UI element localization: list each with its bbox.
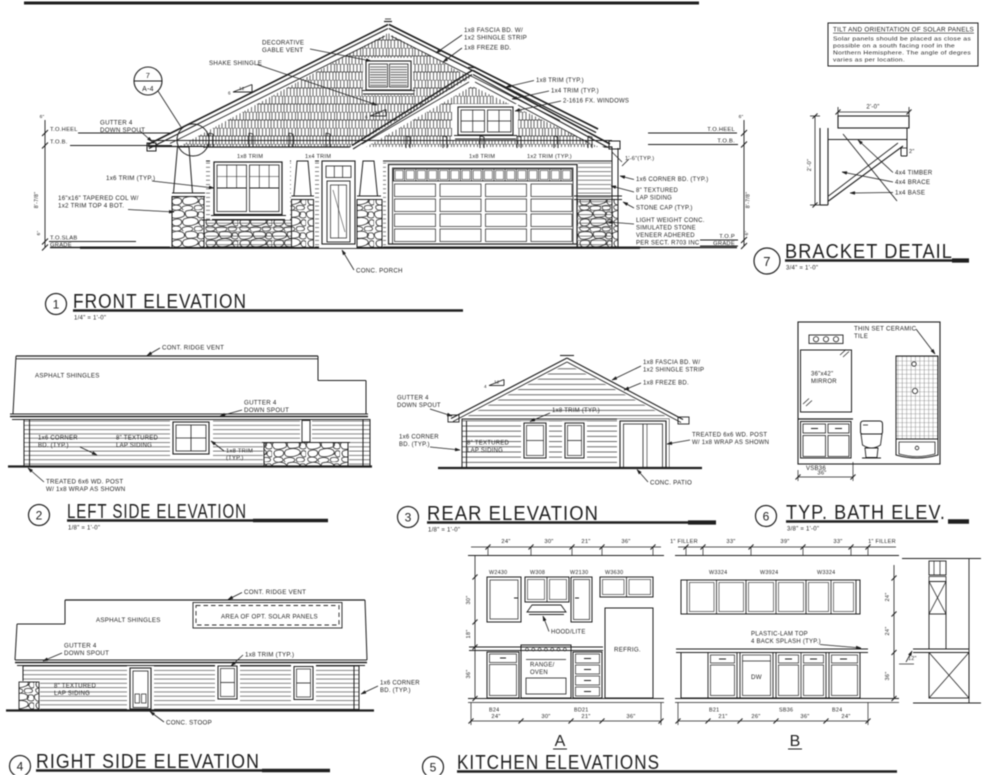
svg-text:1/4" = 1'-0": 1/4" = 1'-0" — [74, 316, 106, 322]
svg-text:8'-7/8": 8'-7/8" — [746, 192, 752, 208]
svg-text:LAP SIDING: LAP SIDING — [54, 691, 90, 697]
svg-text:4: 4 — [17, 760, 24, 774]
svg-text:RANGE/: RANGE/ — [530, 663, 555, 669]
svg-text:PER SECT. R703 INC: PER SECT. R703 INC — [636, 241, 700, 247]
svg-text:8'-7/8": 8'-7/8" — [34, 192, 40, 208]
svg-text:varies as per location.: varies as per location. — [833, 58, 905, 64]
svg-text:36": 36" — [466, 670, 472, 679]
svg-text:1x8 TRIM: 1x8 TRIM — [469, 154, 495, 160]
svg-text:3/8" = 1'-0": 3/8" = 1'-0" — [787, 527, 819, 533]
svg-text:DOWN SPOUT: DOWN SPOUT — [244, 407, 289, 414]
svg-text:THIN SET CERAMIC: THIN SET CERAMIC — [854, 326, 917, 333]
svg-text:26": 26" — [751, 714, 760, 720]
svg-text:HOOD/LITE: HOOD/LITE — [551, 630, 586, 636]
svg-text:12: 12 — [375, 110, 381, 115]
svg-text:4x4 TIMBER: 4x4 TIMBER — [895, 170, 933, 177]
svg-text:BD21: BD21 — [574, 708, 589, 714]
svg-text:24": 24" — [885, 593, 891, 602]
svg-text:W2430: W2430 — [489, 570, 507, 576]
svg-text:BD. (TYP.): BD. (TYP.) — [380, 688, 411, 694]
svg-text:36": 36" — [621, 539, 630, 545]
svg-text:A: A — [555, 733, 566, 750]
svg-text:GRADE: GRADE — [50, 243, 72, 249]
svg-text:6": 6" — [40, 114, 45, 120]
svg-text:21": 21" — [581, 714, 590, 720]
svg-text:LAP SIDING: LAP SIDING — [467, 448, 503, 454]
svg-text:8" TEXTURED: 8" TEXTURED — [116, 436, 159, 442]
svg-text:SHAKE SHINGLE: SHAKE SHINGLE — [209, 60, 262, 67]
svg-text:1x8 FASCIA BD. W/: 1x8 FASCIA BD. W/ — [464, 27, 523, 34]
svg-text:4 BACK SPLASH (TYP.): 4 BACK SPLASH (TYP.) — [751, 639, 821, 645]
svg-text:6: 6 — [228, 91, 231, 96]
svg-text:6": 6" — [739, 114, 744, 120]
svg-text:LIGHT WEIGHT CONC.: LIGHT WEIGHT CONC. — [636, 218, 705, 224]
svg-text:16"x16" TAPERED COL W/: 16"x16" TAPERED COL W/ — [58, 195, 139, 202]
svg-text:W/ 1x8 WRAP AS SHOWN: W/ 1x8 WRAP AS SHOWN — [46, 486, 126, 493]
svg-text:36": 36" — [626, 714, 635, 720]
svg-text:1x2 SHINGLE STRIP: 1x2 SHINGLE STRIP — [464, 35, 527, 42]
svg-text:W3324: W3324 — [709, 570, 727, 576]
svg-text:DOWN SPOUT: DOWN SPOUT — [100, 127, 145, 134]
svg-text:12: 12 — [239, 86, 245, 91]
svg-text:1'-6"(TYP.): 1'-6"(TYP.) — [625, 156, 654, 162]
svg-text:24": 24" — [885, 627, 891, 636]
svg-text:B24: B24 — [489, 708, 499, 714]
svg-text:B: B — [790, 733, 801, 750]
svg-text:1: 1 — [53, 298, 60, 312]
svg-text:GUTTER 4: GUTTER 4 — [397, 396, 429, 402]
svg-text:8" TEXTURED: 8" TEXTURED — [636, 188, 679, 194]
svg-text:ASPHALT SHINGLES: ASPHALT SHINGLES — [35, 373, 100, 380]
svg-text:1x4 BASE: 1x4 BASE — [895, 190, 925, 197]
svg-text:6": 6" — [36, 231, 41, 236]
svg-text:GABLE VENT: GABLE VENT — [262, 47, 303, 54]
svg-text:6": 6" — [744, 231, 749, 236]
svg-text:5: 5 — [430, 761, 437, 775]
svg-text:36": 36" — [800, 714, 809, 720]
svg-text:2'-0": 2'-0" — [807, 159, 813, 171]
svg-text:CONC. STOOP: CONC. STOOP — [166, 720, 212, 727]
svg-text:1x6 CORNER BD. (TYP.): 1x6 CORNER BD. (TYP.) — [636, 177, 709, 183]
svg-text:1x2 TRIM (TYP.): 1x2 TRIM (TYP.) — [527, 154, 572, 160]
svg-text:30": 30" — [466, 596, 472, 605]
svg-text:AREA OF OPT. SOLAR PANELS: AREA OF OPT. SOLAR PANELS — [221, 614, 318, 621]
svg-text:1x8 FREZE BD.: 1x8 FREZE BD. — [464, 45, 511, 52]
svg-text:T.O.B.: T.O.B. — [50, 140, 68, 146]
svg-text:4x4 BRACE: 4x4 BRACE — [895, 179, 930, 186]
svg-text:TILE: TILE — [854, 333, 868, 340]
svg-text:1x2 SHINGLE STRIP: 1x2 SHINGLE STRIP — [643, 368, 704, 374]
svg-text:A-4: A-4 — [142, 86, 154, 93]
svg-text:OVEN: OVEN — [530, 670, 548, 676]
svg-text:BD. (TYP.): BD. (TYP.) — [399, 442, 430, 448]
svg-text:33": 33" — [726, 539, 735, 545]
svg-text:30": 30" — [541, 714, 550, 720]
svg-text:Northern Hemisphere. The angle: Northern Hemisphere. The angle of degres — [833, 51, 971, 57]
svg-text:1x4 TRIM (TYP.): 1x4 TRIM (TYP.) — [551, 89, 599, 95]
svg-text:4: 4 — [484, 384, 487, 389]
svg-text:DOWN SPOUT: DOWN SPOUT — [64, 650, 109, 657]
svg-text:1x8 TRIM (TYP.): 1x8 TRIM (TYP.) — [552, 408, 600, 414]
svg-text:1x6 CORNER: 1x6 CORNER — [399, 435, 439, 441]
svg-text:1/8" = 1'-0": 1/8" = 1'-0" — [428, 528, 460, 534]
svg-text:1x8 TRIM: 1x8 TRIM — [226, 449, 253, 455]
svg-text:12: 12 — [494, 380, 500, 385]
svg-text:(TYP.): (TYP.) — [226, 456, 244, 462]
svg-text:T.O.HEEL: T.O.HEEL — [707, 127, 735, 133]
svg-text:1x6 TRIM (TYP.): 1x6 TRIM (TYP.) — [106, 175, 155, 182]
svg-text:2": 2" — [909, 149, 915, 155]
svg-text:1x8 TRIM: 1x8 TRIM — [237, 154, 263, 160]
svg-text:3/4" = 1'-0": 3/4" = 1'-0" — [786, 266, 818, 272]
svg-text:12": 12" — [908, 656, 917, 662]
svg-text:TILT AND ORIENTATION OF SOLAR: TILT AND ORIENTATION OF SOLAR PANELS — [833, 28, 974, 34]
svg-text:1x6 CORNER: 1x6 CORNER — [380, 681, 420, 687]
svg-text:W3324: W3324 — [817, 570, 835, 576]
svg-text:T.O.P: T.O.P — [719, 234, 735, 240]
svg-text:possible on a south facing roo: possible on a south facing roof in the — [833, 44, 956, 50]
svg-text:36": 36" — [885, 672, 891, 681]
svg-text:1/8" = 1'-0": 1/8" = 1'-0" — [68, 526, 100, 532]
svg-text:1x8 TRIM (TYP.): 1x8 TRIM (TYP.) — [536, 78, 584, 84]
svg-text:SB36: SB36 — [779, 708, 793, 714]
svg-text:CONT. RIDGE VENT: CONT. RIDGE VENT — [162, 345, 224, 352]
svg-text:DW: DW — [751, 674, 762, 681]
svg-text:24": 24" — [501, 539, 510, 545]
svg-text:LAP SIDING: LAP SIDING — [116, 443, 152, 449]
svg-text:1x8 TRIM (TYP.): 1x8 TRIM (TYP.) — [245, 652, 294, 659]
svg-text:CONC. PORCH: CONC. PORCH — [356, 268, 403, 275]
svg-text:W308: W308 — [530, 570, 545, 576]
svg-text:GUTTER 4: GUTTER 4 — [64, 643, 97, 650]
svg-text:21": 21" — [718, 714, 727, 720]
svg-text:1" FILLER: 1" FILLER — [670, 539, 698, 545]
svg-text:T.O.SLAB: T.O.SLAB — [50, 236, 77, 242]
svg-text:CONC. PATIO: CONC. PATIO — [650, 480, 692, 487]
svg-text:PLASTIC-LAM TOP: PLASTIC-LAM TOP — [751, 632, 808, 638]
svg-text:1" FILLER: 1" FILLER — [868, 539, 896, 545]
svg-text:VENEER ADHERED: VENEER ADHERED — [636, 233, 695, 239]
svg-text:1x8 FREZE BD.: 1x8 FREZE BD. — [643, 381, 689, 387]
svg-text:39": 39" — [780, 539, 789, 545]
svg-text:36": 36" — [817, 471, 826, 477]
svg-text:2: 2 — [36, 509, 43, 523]
svg-text:W3924: W3924 — [760, 570, 778, 576]
svg-text:8" TEXTURED: 8" TEXTURED — [467, 441, 510, 447]
svg-text:1x2 TRIM TOP 4 BOT.: 1x2 TRIM TOP 4 BOT. — [58, 203, 124, 210]
svg-text:T.O.HEEL: T.O.HEEL — [50, 127, 78, 133]
svg-text:6: 6 — [365, 115, 368, 120]
svg-text:GRADE: GRADE — [713, 241, 735, 247]
svg-text:GUTTER 4: GUTTER 4 — [244, 400, 277, 407]
svg-text:TREATED 6x6 WD. POST: TREATED 6x6 WD. POST — [46, 479, 123, 486]
svg-text:ASPHALT SHINGLES: ASPHALT SHINGLES — [96, 617, 161, 624]
svg-text:REFRIG.: REFRIG. — [614, 647, 641, 654]
svg-text:8" TEXTURED: 8" TEXTURED — [54, 684, 97, 690]
svg-text:18": 18" — [466, 630, 472, 639]
svg-text:1x8 FASCIA BD. W/: 1x8 FASCIA BD. W/ — [643, 360, 700, 366]
svg-text:TREATED 6x6 WD. POST: TREATED 6x6 WD. POST — [692, 433, 767, 439]
svg-text:MIRROR: MIRROR — [811, 379, 837, 385]
svg-text:CONT. RIDGE VENT: CONT. RIDGE VENT — [244, 589, 306, 596]
svg-text:24": 24" — [491, 714, 500, 720]
svg-text:DECORATIVE: DECORATIVE — [262, 40, 304, 47]
svg-text:2'-0": 2'-0" — [866, 105, 879, 111]
svg-text:33": 33" — [833, 539, 842, 545]
svg-text:BD. (TYP.): BD. (TYP.) — [38, 443, 69, 449]
svg-text:W3630: W3630 — [605, 570, 623, 576]
svg-text:30": 30" — [544, 539, 553, 545]
svg-text:B24: B24 — [832, 708, 842, 714]
svg-text:3: 3 — [405, 511, 412, 525]
svg-text:6: 6 — [763, 510, 770, 524]
svg-text:36"x42": 36"x42" — [811, 372, 833, 378]
svg-text:W/ 1x8 WRAP AS SHOWN: W/ 1x8 WRAP AS SHOWN — [692, 440, 769, 446]
svg-text:24": 24" — [841, 714, 850, 720]
svg-text:B21: B21 — [709, 708, 719, 714]
svg-text:7: 7 — [146, 71, 150, 80]
svg-text:GUTTER 4: GUTTER 4 — [100, 120, 133, 127]
svg-text:2-1616 FX. WINDOWS: 2-1616 FX. WINDOWS — [563, 99, 629, 105]
svg-text:1x6 CORNER: 1x6 CORNER — [38, 436, 78, 442]
svg-text:SIMULATED STONE: SIMULATED STONE — [636, 226, 696, 232]
svg-text:STONE CAP (TYP.): STONE CAP (TYP.) — [636, 206, 693, 212]
svg-text:7: 7 — [763, 254, 770, 269]
svg-text:W2130: W2130 — [570, 570, 588, 576]
svg-text:21": 21" — [581, 539, 590, 545]
svg-text:T.O.B.: T.O.B. — [717, 139, 735, 145]
svg-text:LAP SIDING: LAP SIDING — [636, 196, 672, 202]
svg-text:DOWN SPOUT: DOWN SPOUT — [397, 403, 441, 409]
svg-text:Solar panels should be placed: Solar panels should be placed as close a… — [833, 37, 971, 43]
